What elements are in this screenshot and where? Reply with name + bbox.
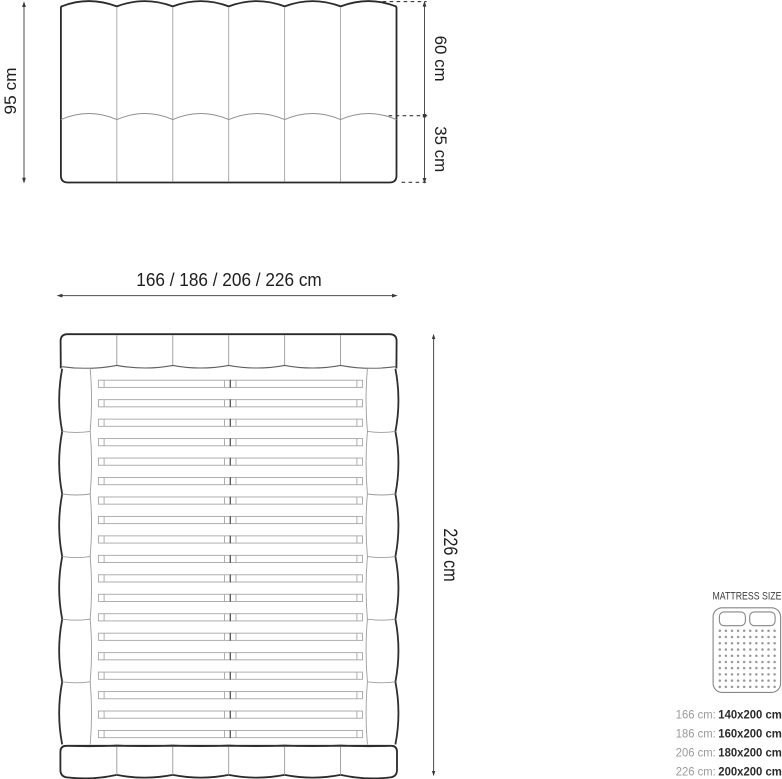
svg-text:166 cm:: 166 cm:: [676, 707, 716, 721]
svg-text:226 cm: 226 cm: [439, 528, 461, 582]
svg-text:95 cm: 95 cm: [1, 68, 20, 115]
svg-text:166 / 186 / 206 / 226 cm: 166 / 186 / 206 / 226 cm: [136, 269, 322, 290]
svg-text:MATTRESS SIZE: MATTRESS SIZE: [713, 591, 782, 603]
svg-text:60 cm: 60 cm: [431, 36, 450, 82]
svg-text:160x200 cm: 160x200 cm: [718, 727, 782, 741]
svg-text:200x200 cm: 200x200 cm: [718, 765, 782, 779]
svg-text:206 cm:: 206 cm:: [676, 746, 716, 760]
svg-text:35 cm: 35 cm: [431, 126, 450, 172]
svg-text:226 cm:: 226 cm:: [676, 765, 716, 779]
svg-text:180x200 cm: 180x200 cm: [718, 746, 782, 760]
svg-text:186 cm:: 186 cm:: [676, 727, 716, 741]
svg-text:140x200 cm: 140x200 cm: [718, 707, 782, 721]
